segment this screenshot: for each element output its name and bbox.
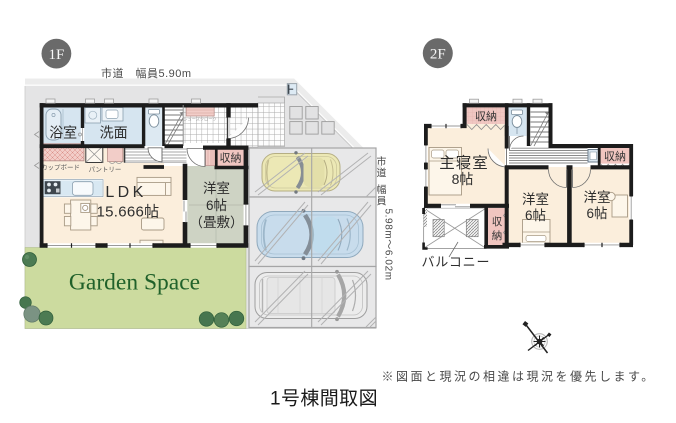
svg-text:道: 道 [377,167,387,180]
svg-text:2F: 2F [430,47,446,63]
svg-text:市道 幅員5.90m: 市道 幅員5.90m [101,66,192,80]
svg-text:幅: 幅 [377,183,387,196]
svg-text:※図面と現況の相違は現況を優先します。: ※図面と現況の相違は現況を優先します。 [382,369,656,384]
svg-text:収納: 収納 [220,152,242,165]
svg-text:浴室: 浴室 [49,125,77,141]
svg-text:収納: 収納 [604,150,626,163]
svg-text:6帖: 6帖 [206,198,227,213]
svg-text:洋室: 洋室 [584,189,611,205]
svg-text:Garden Space: Garden Space [69,270,200,296]
svg-text:LDK: LDK [105,184,146,201]
svg-text:6帖: 6帖 [586,206,607,221]
svg-text:市: 市 [377,155,387,168]
svg-text:パントリー: パントリー [89,166,122,174]
svg-text:バルコニー: バルコニー [422,255,491,270]
svg-text:6帖: 6帖 [525,208,546,223]
svg-text:カップボード: カップボード [41,164,80,172]
svg-text:洋室: 洋室 [522,191,549,207]
svg-text:15.666帖: 15.666帖 [97,204,160,221]
svg-text:5.98m～6.02m: 5.98m～6.02m [383,209,394,281]
svg-text:納: 納 [492,229,503,242]
svg-text:1F: 1F [48,47,64,63]
svg-text:収納: 収納 [475,110,497,123]
svg-text:8帖: 8帖 [452,171,474,187]
svg-text:洋室: 洋室 [203,180,230,196]
svg-text:洗面: 洗面 [100,125,128,141]
svg-text:（畳敷）: （畳敷） [190,215,244,230]
svg-text:シューズクローク: シューズクローク [183,116,216,123]
svg-text:員: 員 [377,196,387,208]
svg-text:収: 収 [492,216,503,228]
svg-text:1号棟間取図: 1号棟間取図 [270,388,378,410]
svg-text:主寝室: 主寝室 [439,153,489,172]
